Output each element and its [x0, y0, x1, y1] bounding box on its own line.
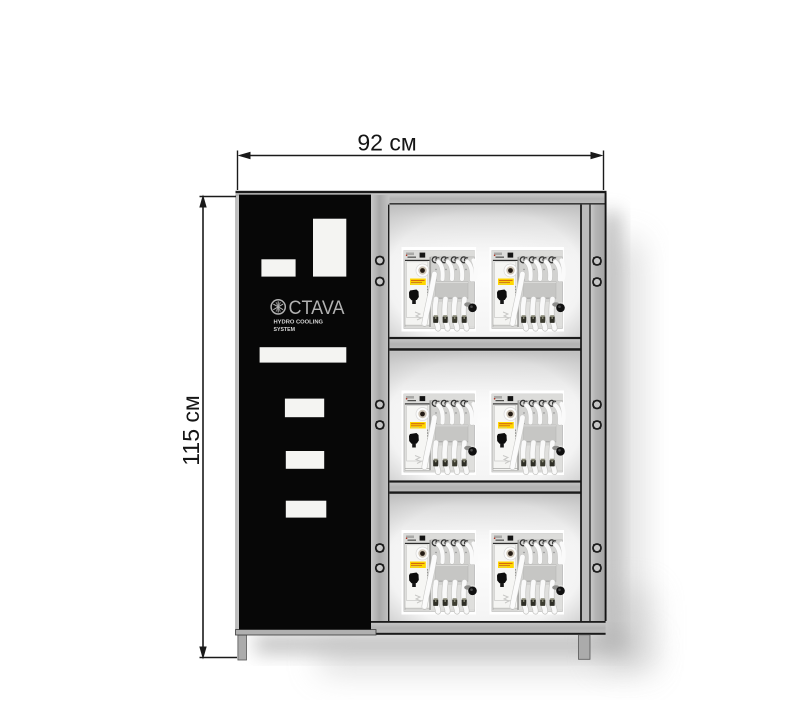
svg-text:HYDRO COOLING: HYDRO COOLING [274, 320, 324, 326]
svg-text:115 см: 115 см [178, 395, 204, 465]
svg-text:92 см: 92 см [357, 130, 416, 156]
svg-text:CTAVA: CTAVA [289, 298, 345, 319]
svg-text:SYSTEM: SYSTEM [274, 327, 296, 333]
